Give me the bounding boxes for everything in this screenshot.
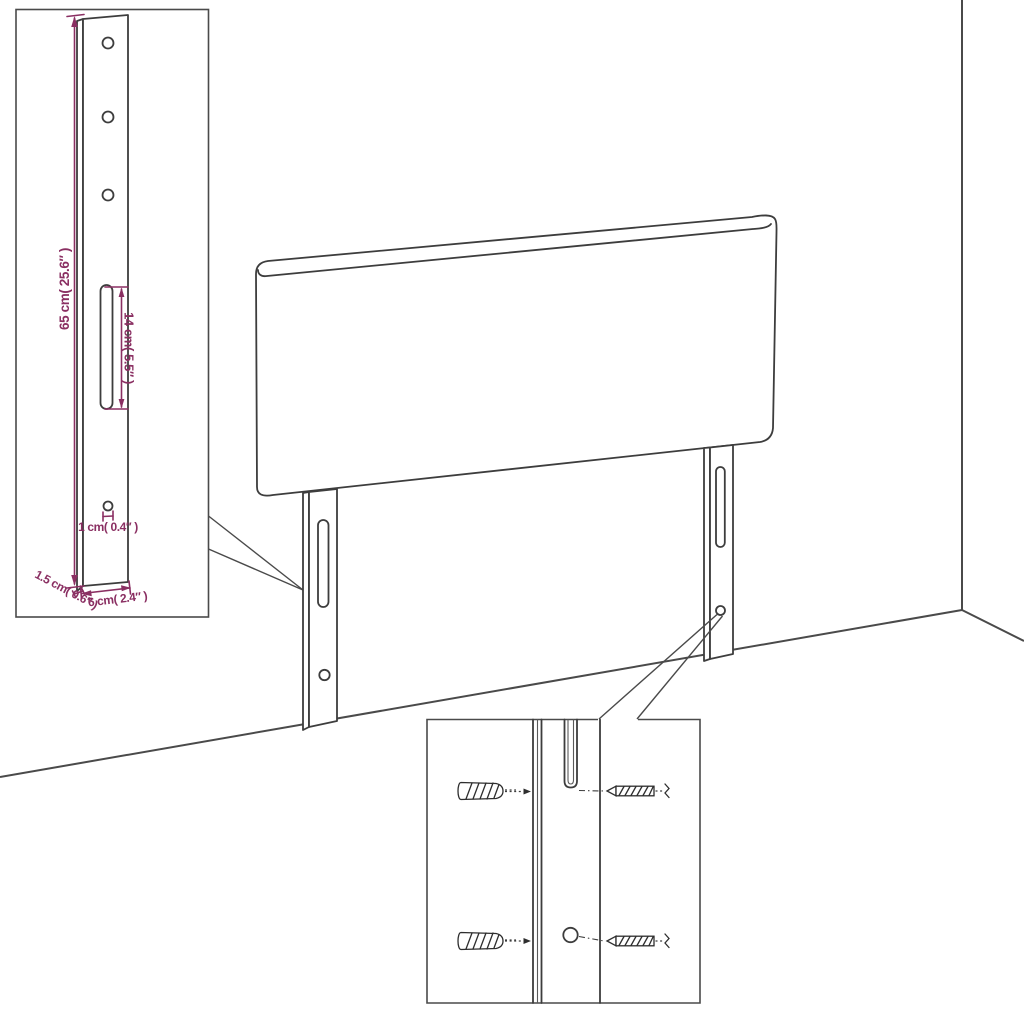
- right-leg: [704, 445, 733, 661]
- detail-box-bottom-border: [427, 720, 700, 1004]
- detail-box-mounting-hardware: [427, 720, 700, 1004]
- assembly-diagram: 65 cm( 25.6″ ) 14 cm( 5.5″ ) 1 cm( 0.4″ …: [0, 0, 1024, 1024]
- floor-line-right: [962, 610, 1024, 641]
- left-leg-front-face: [309, 489, 337, 727]
- label-slot-14cm: 14 cm( 5.5″ ): [122, 312, 137, 384]
- label-hole-1cm: 1 cm( 0.4″ ): [78, 520, 138, 534]
- headboard-panel: [256, 215, 777, 495]
- label-height-65cm: 65 cm( 25.6″ ): [57, 248, 72, 330]
- left-leg: [303, 489, 337, 730]
- callout-leaders-top-left: [209, 516, 304, 590]
- detail-box-bracket-dimensions: 65 cm( 25.6″ ) 14 cm( 5.5″ ) 1 cm( 0.4″ …: [16, 10, 209, 618]
- diagram-canvas: 65 cm( 25.6″ ) 14 cm( 5.5″ ) 1 cm( 0.4″ …: [0, 0, 1024, 1024]
- headboard-body: [256, 215, 777, 495]
